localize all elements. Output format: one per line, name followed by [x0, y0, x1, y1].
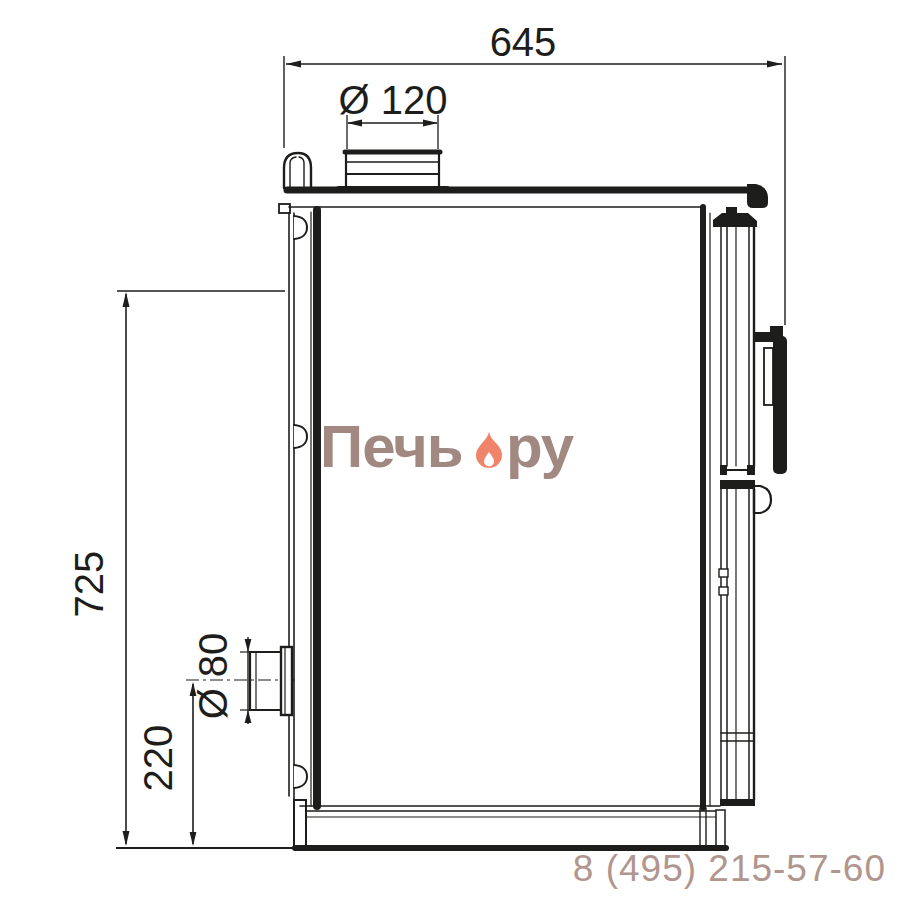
arrowhead-down-icon [190, 832, 197, 846]
top-plate [287, 184, 768, 208]
stove-outline [250, 151, 787, 848]
rear-foot [716, 810, 725, 846]
dimension-label-725: 725 [67, 551, 111, 618]
damper-knob [279, 153, 311, 213]
arrowhead-up-icon [123, 292, 130, 307]
dimension-label-outlet-diameter: Ø 80 [191, 633, 235, 720]
arrowhead-left-icon [286, 61, 301, 68]
front-leg [294, 800, 306, 847]
door-handle [755, 326, 787, 474]
arrowhead-down-icon [123, 831, 130, 846]
hinge-icon [719, 587, 728, 595]
chimney-collar [339, 151, 447, 189]
dimension-label-645: 645 [490, 20, 557, 64]
arrowhead-right-icon [767, 61, 782, 68]
latch-handle [754, 486, 771, 513]
stove-drawing: 645 Ø 120 725 Ø 80 [0, 0, 899, 899]
phone-number: 8 (495) 215-57-60 [573, 848, 886, 889]
watermark: Печь ру [320, 413, 575, 480]
hinge-icon [719, 569, 728, 577]
lower-door [719, 480, 771, 806]
watermark-brand-suffix: ру [506, 413, 575, 480]
hinge-icon [294, 216, 307, 239]
dimension-label-220: 220 [136, 725, 180, 792]
hinge-icon [294, 425, 307, 448]
watermark-brand-prefix: Печь [320, 413, 463, 480]
dimension-label-flue-diameter: Ø 120 [339, 78, 448, 122]
flame-icon [476, 432, 502, 468]
technical-drawing-page: 645 Ø 120 725 Ø 80 [0, 0, 899, 899]
front-panel [289, 213, 307, 847]
hinge-icon [294, 765, 307, 788]
arrowhead-down-icon [245, 639, 252, 652]
outlet-pipe [250, 647, 292, 715]
arrowhead-up-icon [245, 710, 252, 723]
base-plinth [295, 808, 726, 848]
upper-door [713, 207, 757, 475]
